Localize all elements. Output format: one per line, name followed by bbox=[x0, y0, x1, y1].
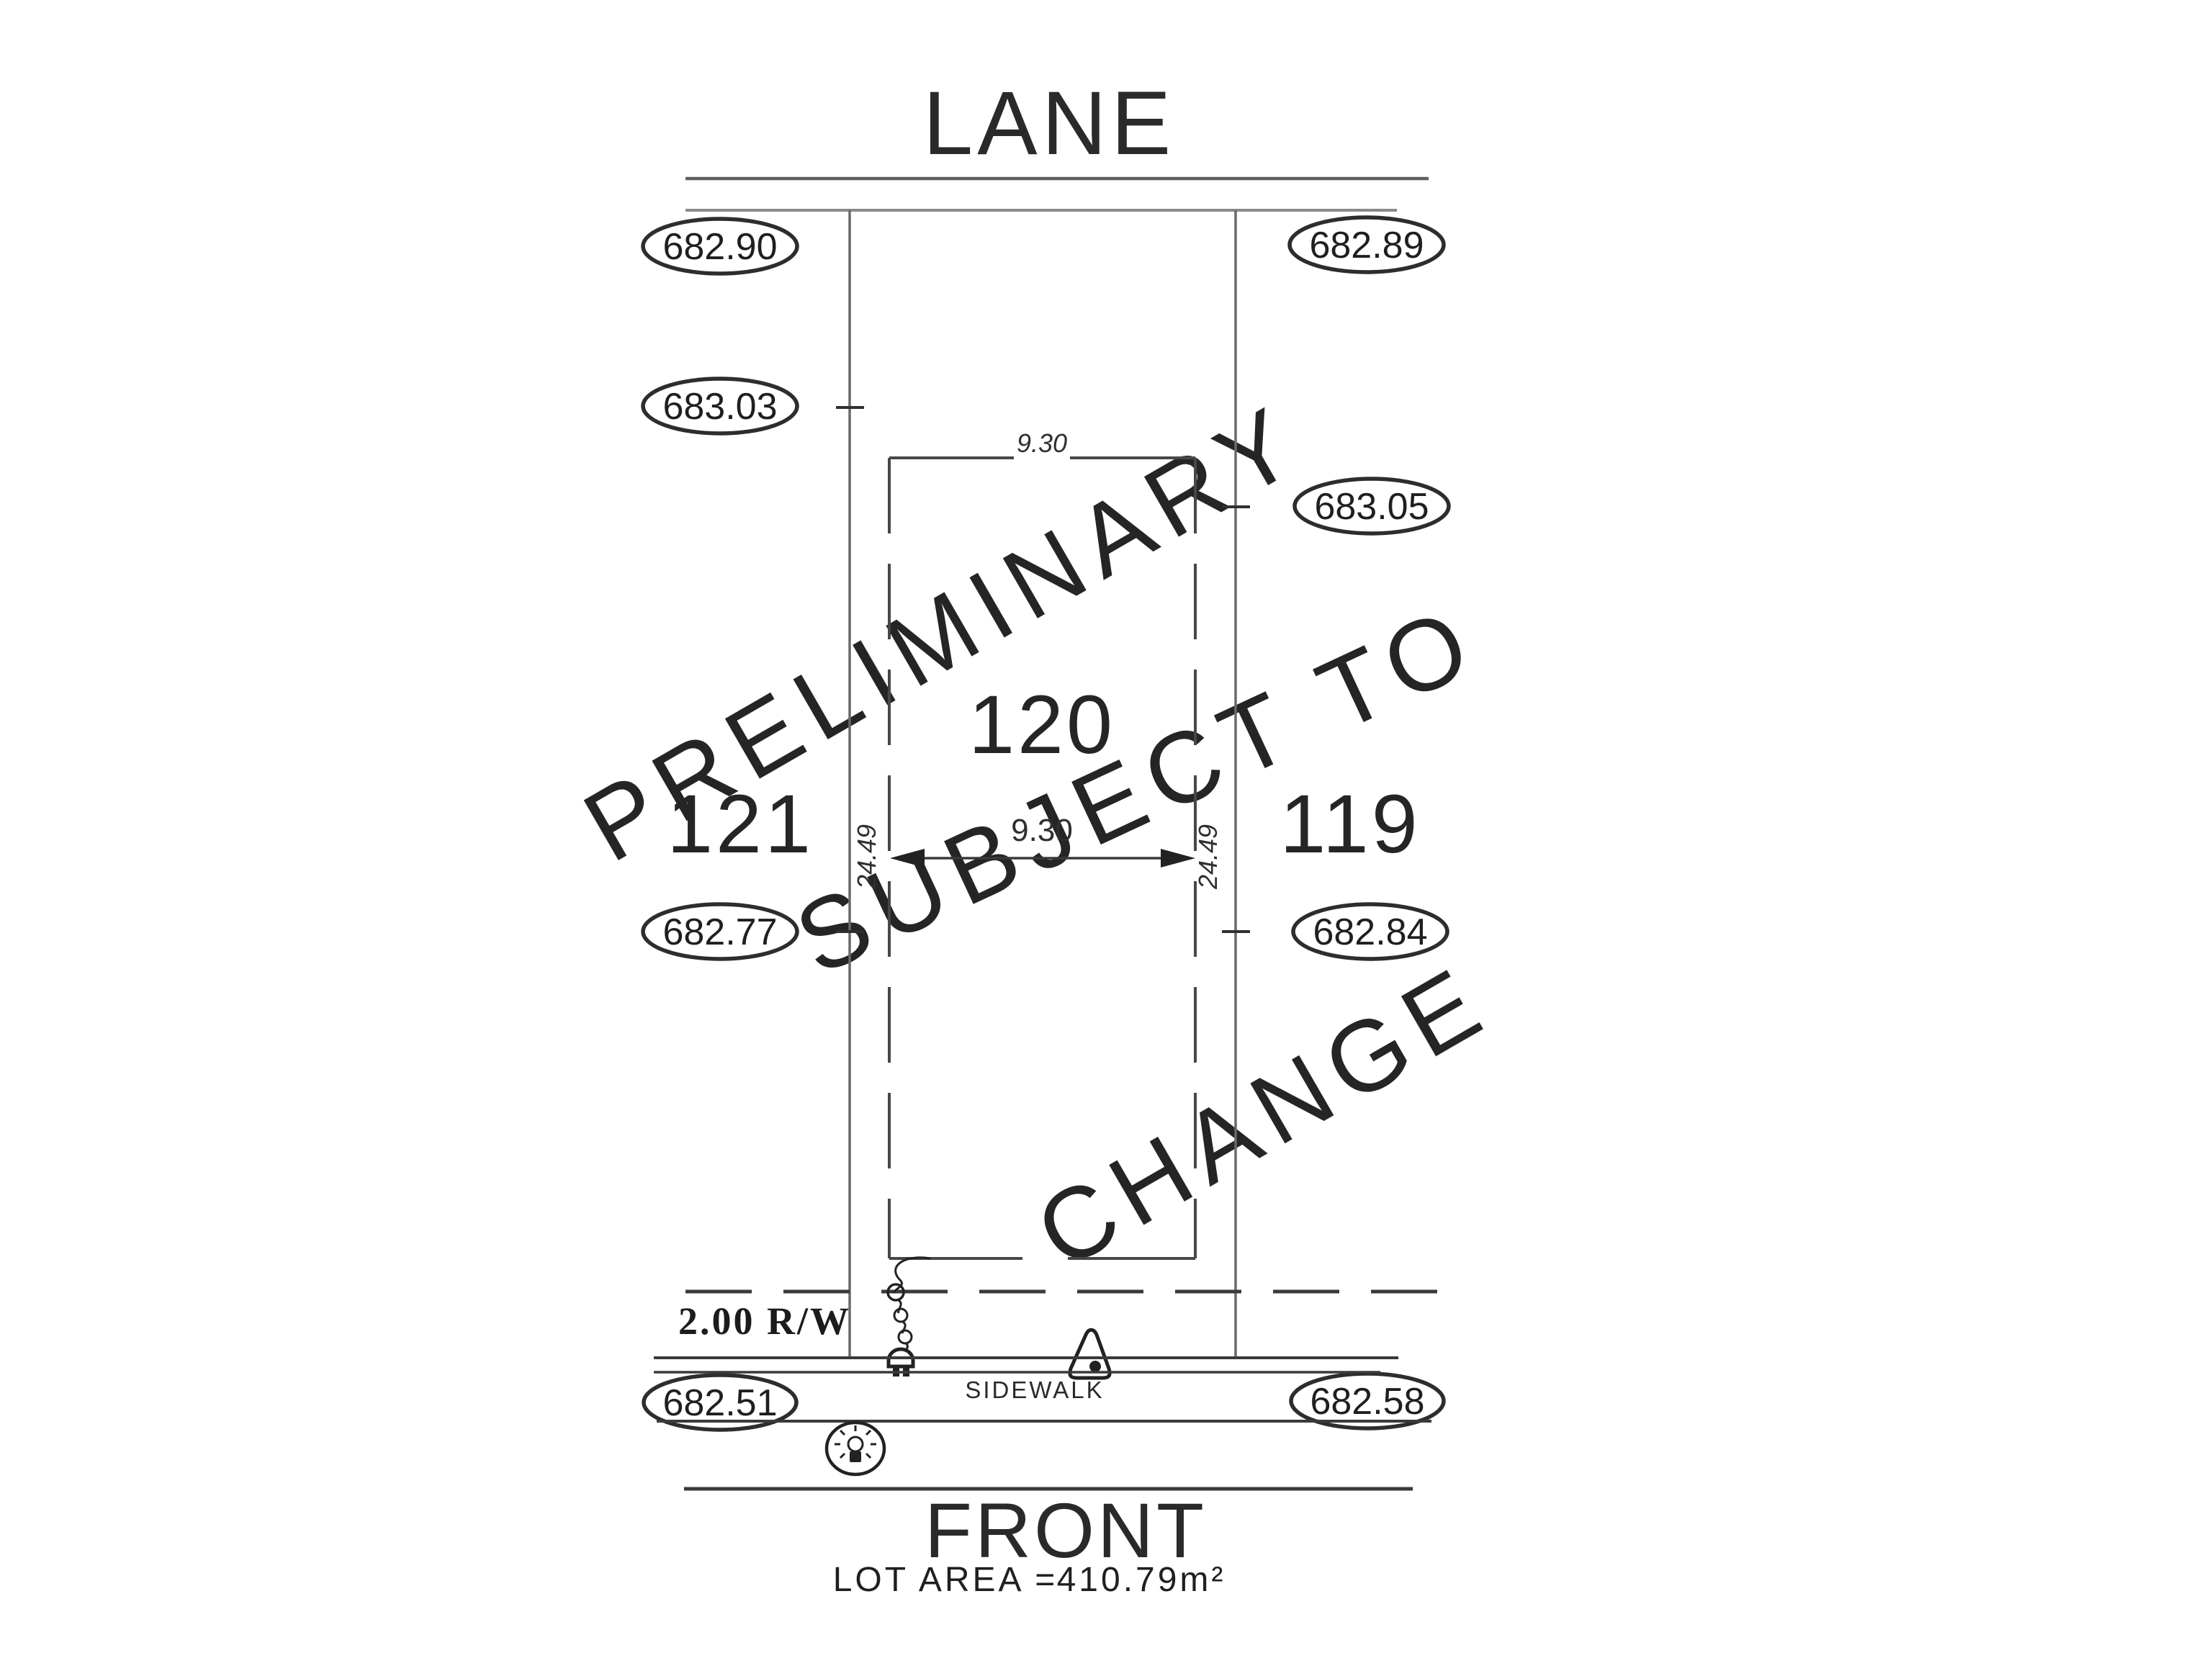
elevation-upper-right: 683.05 bbox=[1314, 486, 1429, 528]
lot-number-center: 120 bbox=[968, 679, 1115, 771]
marker-triangle-dot bbox=[1089, 1361, 1101, 1372]
elevation-mid-right: 682.84 bbox=[1313, 911, 1427, 953]
right-of-way-label: 2.00 R/W bbox=[678, 1299, 851, 1343]
dim-mid-width: 9.30 bbox=[1011, 813, 1073, 848]
service-circle-3 bbox=[899, 1330, 912, 1343]
lot-area-value: 410.79m² bbox=[1057, 1561, 1226, 1599]
street-light-base bbox=[850, 1451, 861, 1462]
elevation-sidewalk-right: 682.58 bbox=[1310, 1381, 1424, 1423]
lot-area-label: LOT AREA = bbox=[833, 1561, 1058, 1599]
elevation-lane-left: 682.90 bbox=[662, 226, 777, 268]
hydrant-marker-symbol bbox=[1070, 1330, 1110, 1378]
dim-arrowhead-right bbox=[1161, 849, 1195, 868]
dim-top-width: 9.30 bbox=[1017, 428, 1067, 458]
survey-plan-page: PRELIMINARY SUBJECT TO CHANGE LANE 9.30 … bbox=[0, 0, 2212, 1658]
street-light-bulb-icon bbox=[848, 1437, 863, 1451]
sidewalk-label: SIDEWALK bbox=[965, 1377, 1104, 1403]
dim-right-depth: 24.49 bbox=[1193, 824, 1223, 890]
lane-label: LANE bbox=[923, 73, 1176, 174]
service-circle-2 bbox=[894, 1309, 907, 1322]
elevation-upper-left: 683.03 bbox=[662, 386, 777, 428]
lot-number-left: 121 bbox=[667, 778, 814, 870]
dim-left-depth: 24.49 bbox=[852, 824, 881, 890]
elevation-mid-left: 682.77 bbox=[662, 911, 777, 953]
marker-triangle-icon bbox=[1070, 1330, 1110, 1378]
elevation-sidewalk-left: 682.51 bbox=[662, 1382, 777, 1424]
watermark-line-3: CHANGE bbox=[1018, 942, 1508, 1289]
site-plan-drawing: PRELIMINARY SUBJECT TO CHANGE LANE 9.30 … bbox=[0, 0, 2212, 1658]
elevation-lane-right: 682.89 bbox=[1309, 225, 1424, 266]
lot-number-right: 119 bbox=[1280, 778, 1420, 870]
street-light-symbol bbox=[827, 1423, 884, 1474]
